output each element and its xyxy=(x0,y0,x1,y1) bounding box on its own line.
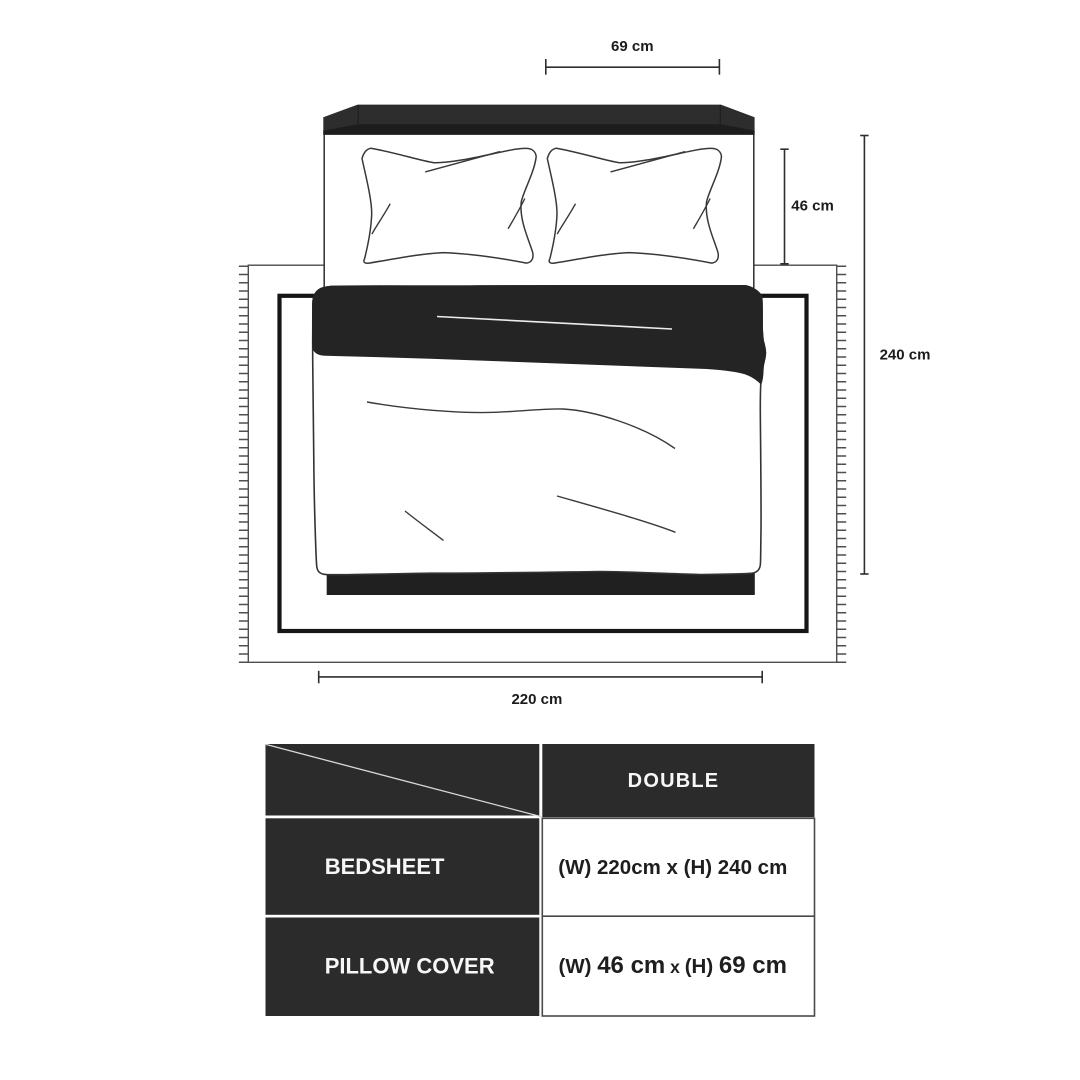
svg-text:(W) 220cm x (H) 240 cm: (W) 220cm x (H) 240 cm xyxy=(558,856,787,879)
svg-text:46 cm: 46 cm xyxy=(791,198,834,215)
svg-text:DOUBLE: DOUBLE xyxy=(628,770,720,792)
svg-text:240 cm: 240 cm xyxy=(880,347,931,364)
svg-text:PILLOW COVER: PILLOW COVER xyxy=(325,953,495,978)
svg-text:220 cm: 220 cm xyxy=(511,691,562,708)
svg-text:BEDSHEET: BEDSHEET xyxy=(325,854,445,879)
svg-text:69 cm: 69 cm xyxy=(611,38,654,55)
svg-text:(W) 46 cm x (H) 69 cm: (W) 46 cm x (H) 69 cm xyxy=(559,952,787,979)
